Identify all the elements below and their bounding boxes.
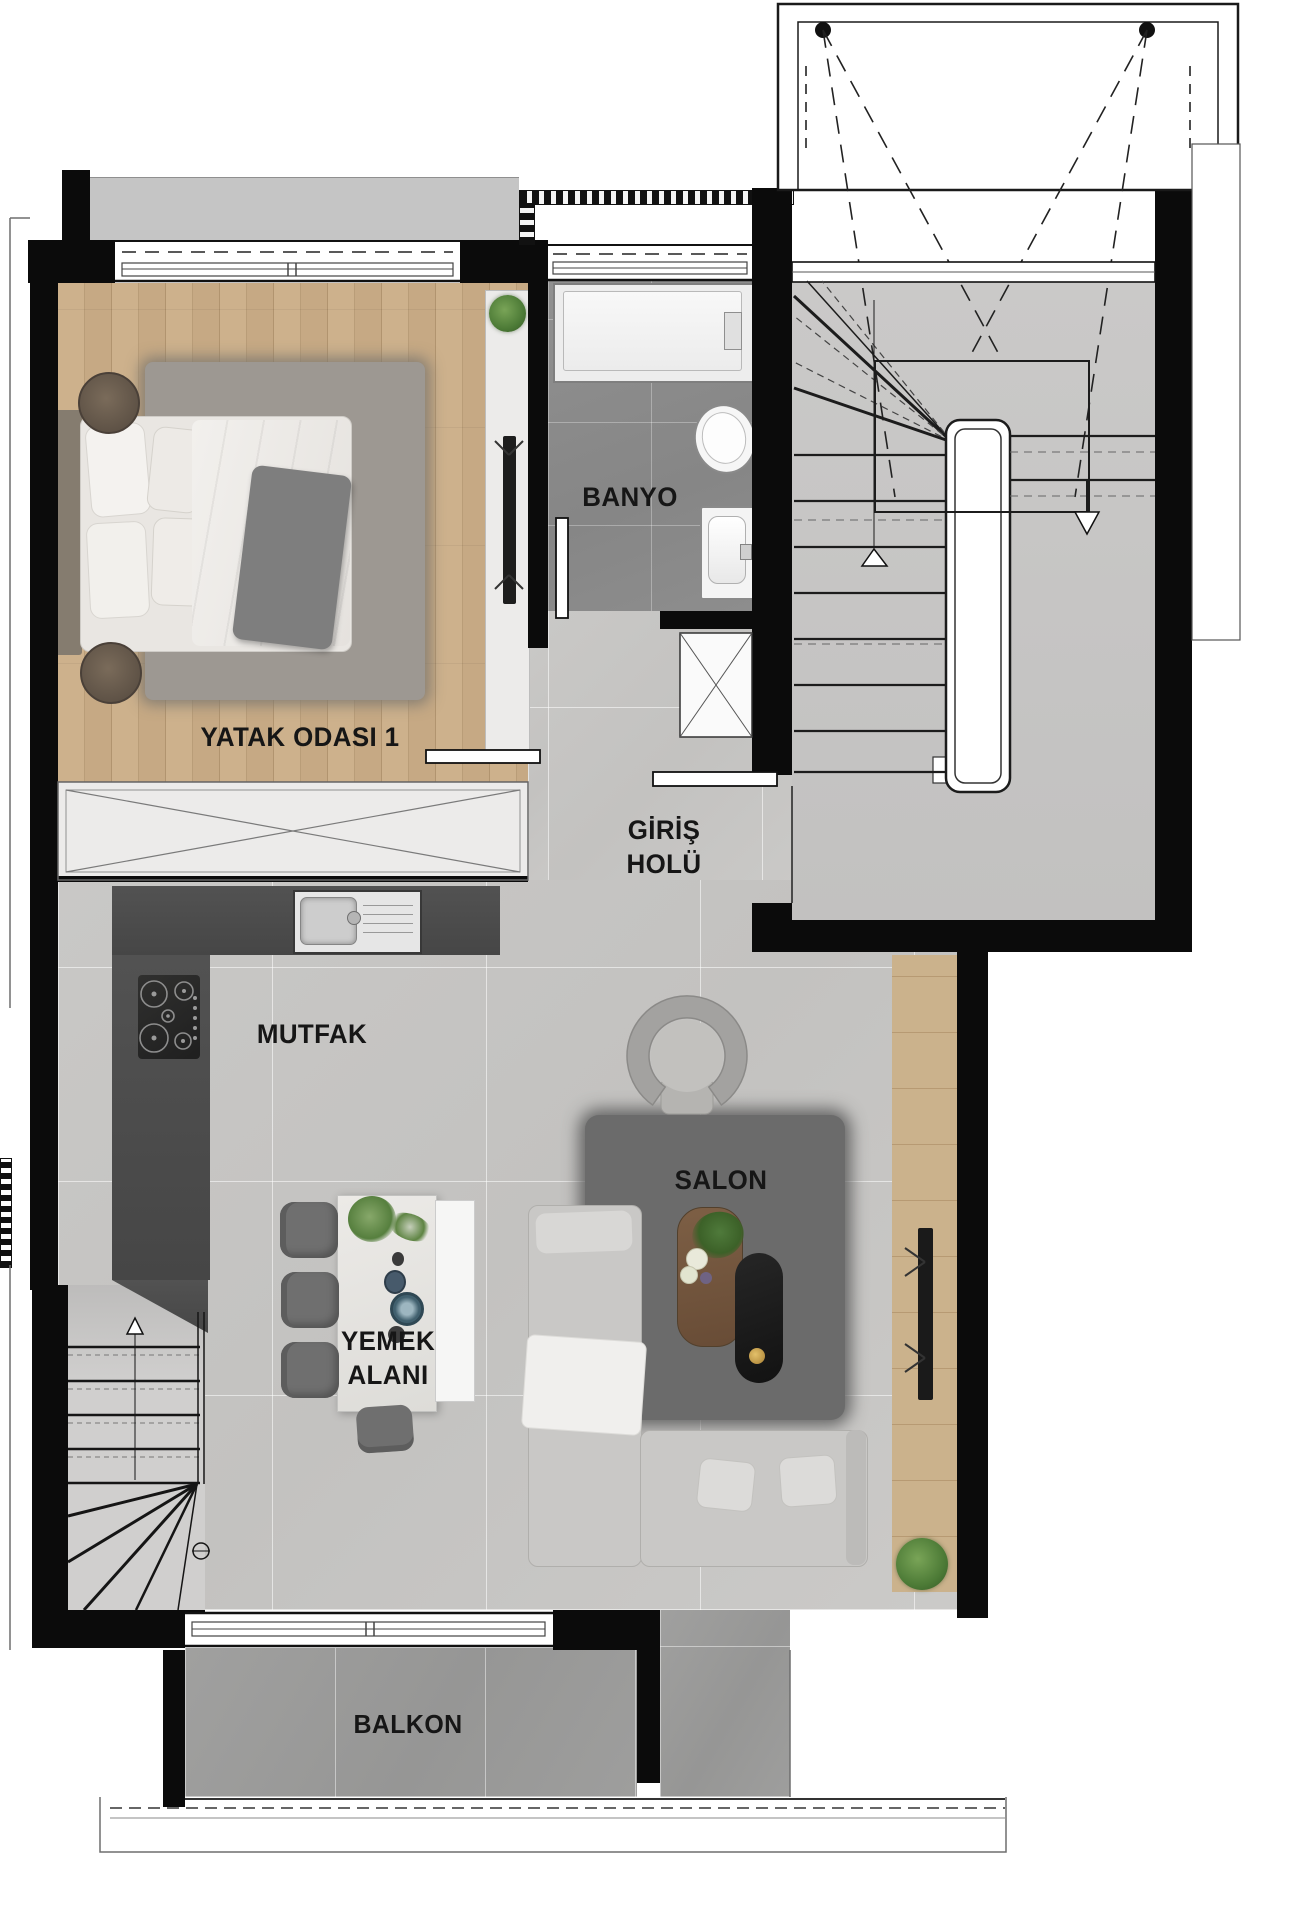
wall [752, 920, 1192, 952]
balcony-door-window [185, 1612, 553, 1648]
roof-eave-strip [90, 177, 519, 241]
wall-hatched [519, 203, 535, 245]
wall [528, 240, 548, 648]
wall [957, 952, 988, 1618]
table-bowl-icon [384, 1270, 406, 1294]
room-label-bathroom: BANYO [582, 480, 678, 514]
floor-plan: YATAK ODASI 1 BANYO GİRİŞ HOLÜ MUTFAK SA… [0, 0, 1289, 1920]
sofa-pillow [778, 1454, 837, 1508]
balcony-floor-right [660, 1610, 790, 1797]
side-table-knob-icon [749, 1348, 765, 1364]
room-label-balcony: BALKON [353, 1707, 462, 1741]
room-label-entry-hall-line2: HOLÜ [627, 847, 702, 881]
wardrobe [58, 782, 528, 880]
bed-pillow [86, 520, 151, 619]
plant-icon [489, 295, 526, 332]
bedroom-window [115, 240, 460, 282]
wall [58, 876, 528, 882]
coffee-table-berries-icon [700, 1272, 712, 1284]
lower-stairs-floor [68, 1285, 205, 1610]
wall [30, 283, 58, 883]
dining-bench [435, 1200, 475, 1402]
wall [1155, 144, 1192, 920]
wall [28, 240, 115, 283]
table-bowl-large-icon [390, 1292, 424, 1326]
kitchen-sink-drainboard [363, 899, 413, 941]
salon-tv [918, 1228, 933, 1400]
dining-chair [355, 1404, 414, 1454]
room-label-living: SALON [675, 1163, 768, 1197]
room-label-dining-line1: YEMEK [341, 1324, 435, 1358]
stairwell-floor [792, 281, 1155, 920]
nightstand [80, 642, 142, 704]
wall [752, 757, 792, 775]
table-candle-icon [392, 1252, 404, 1266]
bathtub-faucet-icon [724, 312, 742, 350]
wall [32, 1285, 68, 1648]
wall [660, 611, 792, 629]
coffee-table-flowers-icon [680, 1266, 698, 1284]
wall [62, 170, 90, 242]
kitchen-faucet-icon [347, 911, 361, 925]
room-label-entry-hall-line1: GİRİŞ [627, 813, 702, 847]
balcony-railing [110, 1799, 1005, 1818]
dining-chair [281, 1342, 339, 1398]
stove-hob [138, 975, 200, 1059]
sofa-pillow [696, 1457, 757, 1513]
sofa-throw [521, 1334, 647, 1436]
dining-chair [281, 1272, 339, 1328]
stairwell-window [792, 262, 1155, 282]
bed-pillow [84, 422, 152, 519]
room-label-bedroom: YATAK ODASI 1 [201, 720, 400, 754]
room-label-dining: YEMEK ALANI [341, 1324, 435, 1392]
washbasin-faucet-icon [740, 544, 752, 560]
wall [752, 188, 792, 757]
bedroom-tv [503, 436, 516, 604]
sofa-armrest [846, 1430, 866, 1565]
wall [68, 1610, 205, 1648]
wall [30, 880, 58, 1290]
room-label-entry-hall: GİRİŞ HOLÜ [627, 813, 702, 881]
bathtub-basin [563, 291, 742, 371]
nightstand [78, 372, 140, 434]
bed-headboard [54, 410, 82, 655]
wall [637, 1610, 660, 1783]
bathroom-window [548, 244, 752, 281]
duct-hatch-strip [0, 1158, 12, 1268]
room-label-dining-line2: ALANI [341, 1358, 435, 1392]
dining-chair [280, 1202, 338, 1258]
plant-icon [896, 1538, 948, 1590]
sofa-back-cushion [535, 1210, 632, 1253]
room-label-kitchen: MUTFAK [257, 1017, 367, 1051]
wall [163, 1650, 185, 1807]
bed-blanket [232, 465, 353, 651]
